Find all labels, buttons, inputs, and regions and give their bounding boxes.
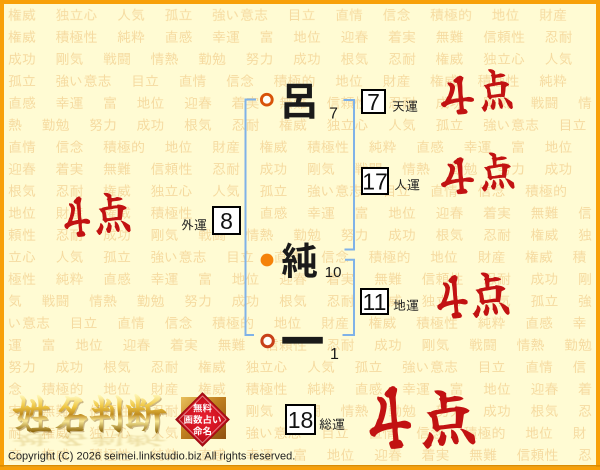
svg-text:18: 18 xyxy=(288,407,314,433)
svg-text:7: 7 xyxy=(367,89,380,115)
svg-text:1: 1 xyxy=(330,346,339,363)
svg-text:10: 10 xyxy=(325,264,342,281)
svg-text:17: 17 xyxy=(362,168,388,194)
svg-text:7: 7 xyxy=(329,105,338,122)
svg-text:11: 11 xyxy=(363,289,387,315)
svg-text:Copyright (C) 2026 seimei.link: Copyright (C) 2026 seimei.linkstudio.biz… xyxy=(8,451,295,463)
svg-text:8: 8 xyxy=(220,208,233,234)
